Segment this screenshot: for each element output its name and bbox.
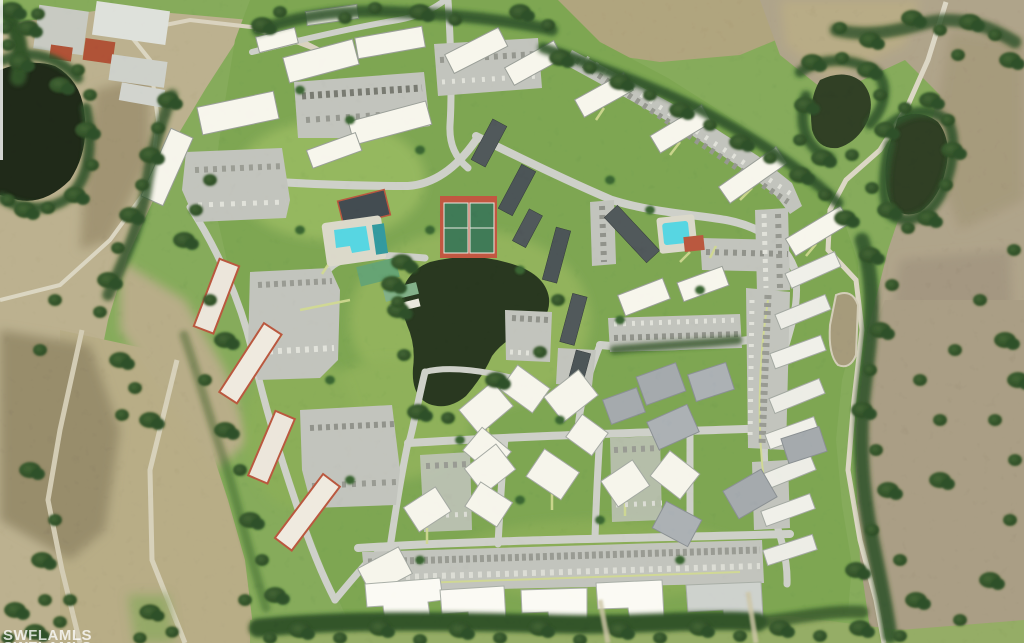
svg-text:SWFLAMLS: SWFLAMLS (3, 639, 92, 643)
